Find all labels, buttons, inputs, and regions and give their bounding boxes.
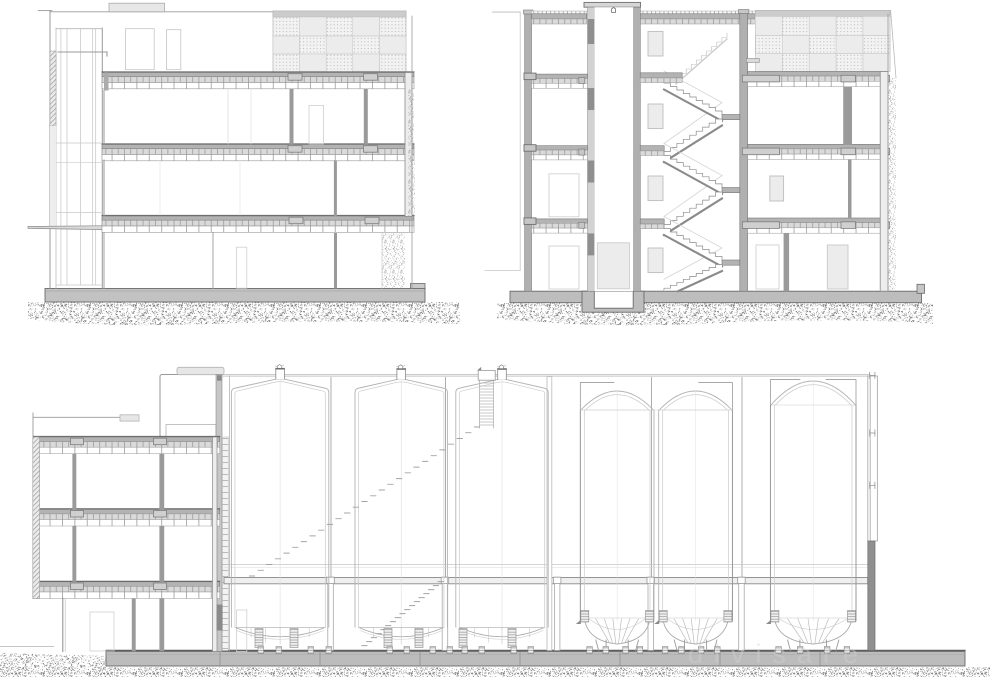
svg-text:divisare: divisare [688,639,869,669]
